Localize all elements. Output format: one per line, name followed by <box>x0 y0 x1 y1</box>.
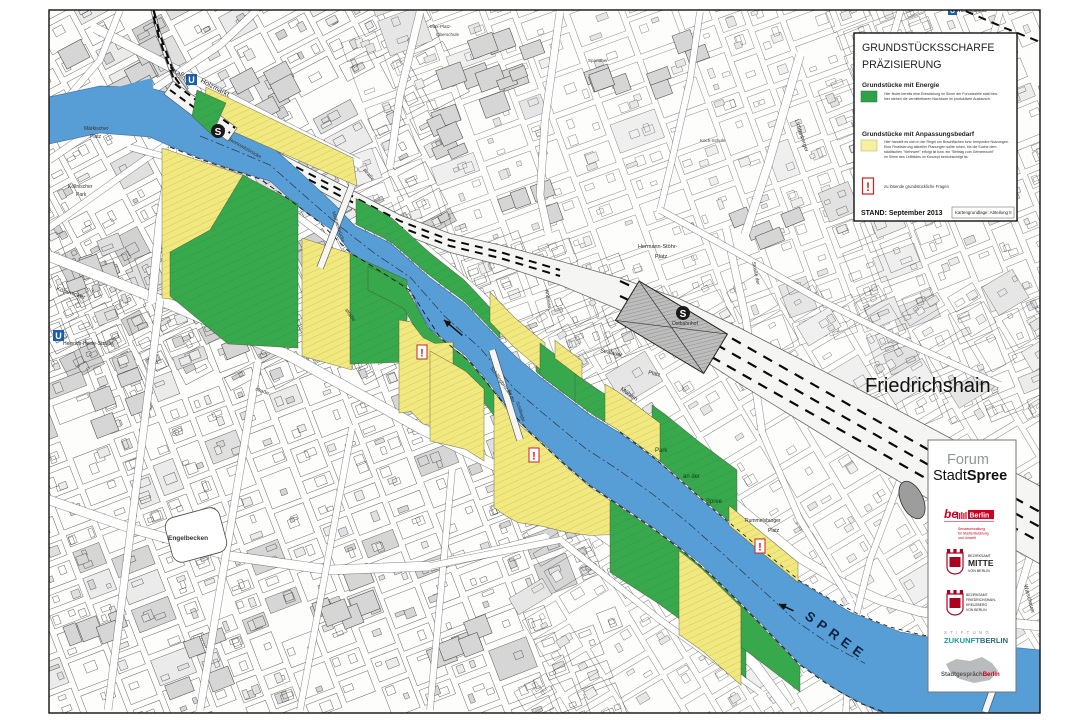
svg-text:Hier findet bereits eine Entwi: Hier findet bereits eine Entwicklung im … <box>884 92 998 96</box>
svg-text:Max-Platz-: Max-Platz- <box>430 24 452 29</box>
svg-text:MITTE: MITTE <box>968 558 994 568</box>
svg-text:!: ! <box>758 542 762 554</box>
svg-text:StadtSpree: StadtSpree <box>933 468 1007 484</box>
svg-text:Heinrich-Heine-Straße: Heinrich-Heine-Straße <box>63 341 113 347</box>
svg-text:für Stadtentwicklung: für Stadtentwicklung <box>958 532 989 536</box>
svg-text:Hier handelt es sich in der Re: Hier handelt es sich in der Regel um Bra… <box>884 140 1009 144</box>
svg-text:STIFTUNG: STIFTUNG <box>944 630 992 635</box>
svg-text:zu lösende grundstückliche Fra: zu lösende grundstückliche Fragen <box>884 184 950 189</box>
svg-text:U: U <box>188 75 195 85</box>
svg-text:GRUNDSTÜCKSSCHARFE: GRUNDSTÜCKSSCHARFE <box>862 42 994 54</box>
svg-text:ZUKUNFTBERLIN: ZUKUNFTBERLIN <box>944 636 1008 645</box>
svg-text:an der: an der <box>683 474 700 480</box>
svg-text:Grundstücke mit Anpassungsbeda: Grundstücke mit Anpassungsbedarf <box>862 131 975 138</box>
svg-text:Köllnischer: Köllnischer <box>68 184 93 190</box>
svg-text:VON BERLIN: VON BERLIN <box>968 569 990 573</box>
svg-text:Ostbahnhof: Ostbahnhof <box>672 321 698 327</box>
svg-text:Platz: Platz <box>768 528 780 534</box>
svg-text:Forum: Forum <box>947 452 989 468</box>
svg-text:STAND: September 2013: STAND: September 2013 <box>861 210 943 217</box>
svg-text:!: ! <box>532 451 536 463</box>
svg-text:S: S <box>215 127 222 138</box>
svg-text:hier stehen die vermittelbaren: hier stehen die vermittelbaren Nachbarn … <box>884 97 991 101</box>
svg-text:PRÄZISIERUNG: PRÄZISIERUNG <box>862 59 941 71</box>
svg-text:Berlin: Berlin <box>970 513 990 520</box>
svg-text:Spree: Spree <box>706 499 723 505</box>
svg-text:Märkischer: Märkischer <box>84 126 109 132</box>
svg-text:Eine Finalisierung aktueller P: Eine Finalisierung aktueller Planungen s… <box>884 145 996 149</box>
svg-text:Engelbecken: Engelbecken <box>168 535 208 542</box>
svg-text:StadtgesprächBerlin: StadtgesprächBerlin <box>941 672 1000 678</box>
svg-text:Park: Park <box>655 448 668 454</box>
svg-text:Senatsverwaltung: Senatsverwaltung <box>958 527 985 531</box>
svg-text:Rummelsburger: Rummelsburger <box>745 518 781 524</box>
svg-text:Kartengrundlage: Abteilung II: Kartengrundlage: Abteilung II <box>955 210 1012 215</box>
svg-text:Platz: Platz <box>90 134 102 140</box>
svg-text:S: S <box>680 309 687 320</box>
svg-text:Friedrichshain: Friedrichshain <box>865 375 991 397</box>
svg-text:FRIEDRICHSHAIN-: FRIEDRICHSHAIN- <box>966 598 996 602</box>
svg-text:Grundstücke mit Energie: Grundstücke mit Energie <box>862 82 940 89</box>
svg-text:Spartaner: Spartaner <box>588 58 608 63</box>
svg-text:be: be <box>944 507 958 521</box>
svg-text:!: ! <box>866 180 870 194</box>
svg-text:BEZIRKSAMT: BEZIRKSAMT <box>966 593 988 597</box>
svg-text:Koch-Schule: Koch-Schule <box>700 138 726 143</box>
svg-text:und Umwelt: und Umwelt <box>958 536 976 540</box>
svg-text:VON BERLIN: VON BERLIN <box>966 608 987 612</box>
svg-text:Platz: Platz <box>655 254 667 260</box>
svg-text:KREUZBERG: KREUZBERG <box>966 603 987 607</box>
svg-text:Oberschule: Oberschule <box>436 32 460 37</box>
svg-text:!: ! <box>420 348 424 360</box>
svg-text:städtischen "Mehrwert" erfolgt: städtischen "Mehrwert" erfolgt ist bzw. … <box>884 150 995 154</box>
svg-text:im Sinne des Leitbildes im Kon: im Sinne des Leitbildes im Konzept berüc… <box>884 155 969 159</box>
svg-text:Park: Park <box>76 192 87 198</box>
svg-text:U: U <box>55 331 62 341</box>
svg-text:Hermann-Stöhr-: Hermann-Stöhr- <box>638 244 678 250</box>
